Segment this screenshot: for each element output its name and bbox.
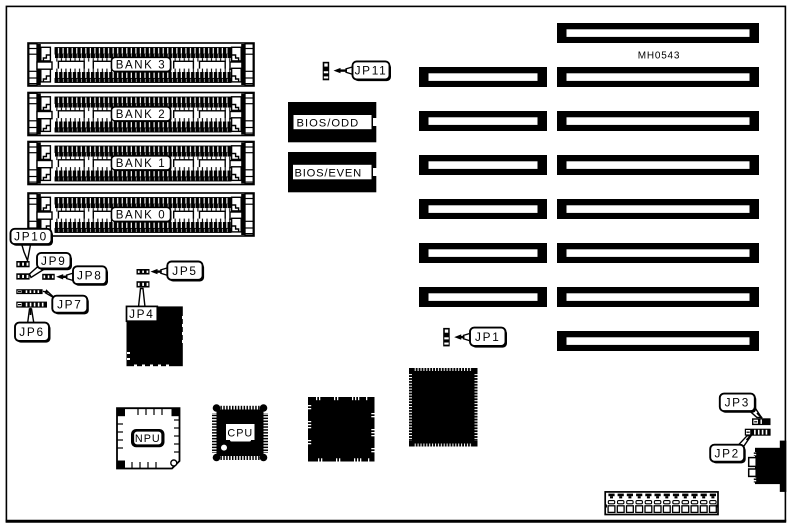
svg-text:JP2: JP2 bbox=[714, 446, 739, 460]
svg-text:BANK 3: BANK 3 bbox=[116, 59, 167, 71]
svg-text:CPU: CPU bbox=[227, 428, 253, 440]
svg-text:NPU: NPU bbox=[135, 433, 161, 445]
svg-text:JP4: JP4 bbox=[129, 307, 154, 321]
svg-text:BANK 1: BANK 1 bbox=[116, 158, 167, 170]
svg-text:JP8: JP8 bbox=[77, 268, 102, 282]
svg-text:JP9: JP9 bbox=[41, 254, 66, 268]
svg-text:JP3: JP3 bbox=[725, 395, 750, 409]
svg-text:BANK 2: BANK 2 bbox=[116, 109, 167, 121]
svg-text:JP11: JP11 bbox=[355, 64, 388, 78]
svg-text:MH0543: MH0543 bbox=[638, 51, 681, 62]
svg-text:JP6: JP6 bbox=[19, 325, 44, 339]
svg-text:BIOS/ODD: BIOS/ODD bbox=[297, 117, 360, 129]
svg-text:BANK 0: BANK 0 bbox=[116, 209, 167, 221]
svg-text:JP5: JP5 bbox=[172, 264, 197, 278]
svg-text:JP1: JP1 bbox=[475, 330, 500, 344]
svg-text:JP7: JP7 bbox=[57, 297, 82, 311]
svg-text:BIOS/EVEN: BIOS/EVEN bbox=[295, 167, 363, 179]
svg-text:JP10: JP10 bbox=[14, 230, 48, 244]
